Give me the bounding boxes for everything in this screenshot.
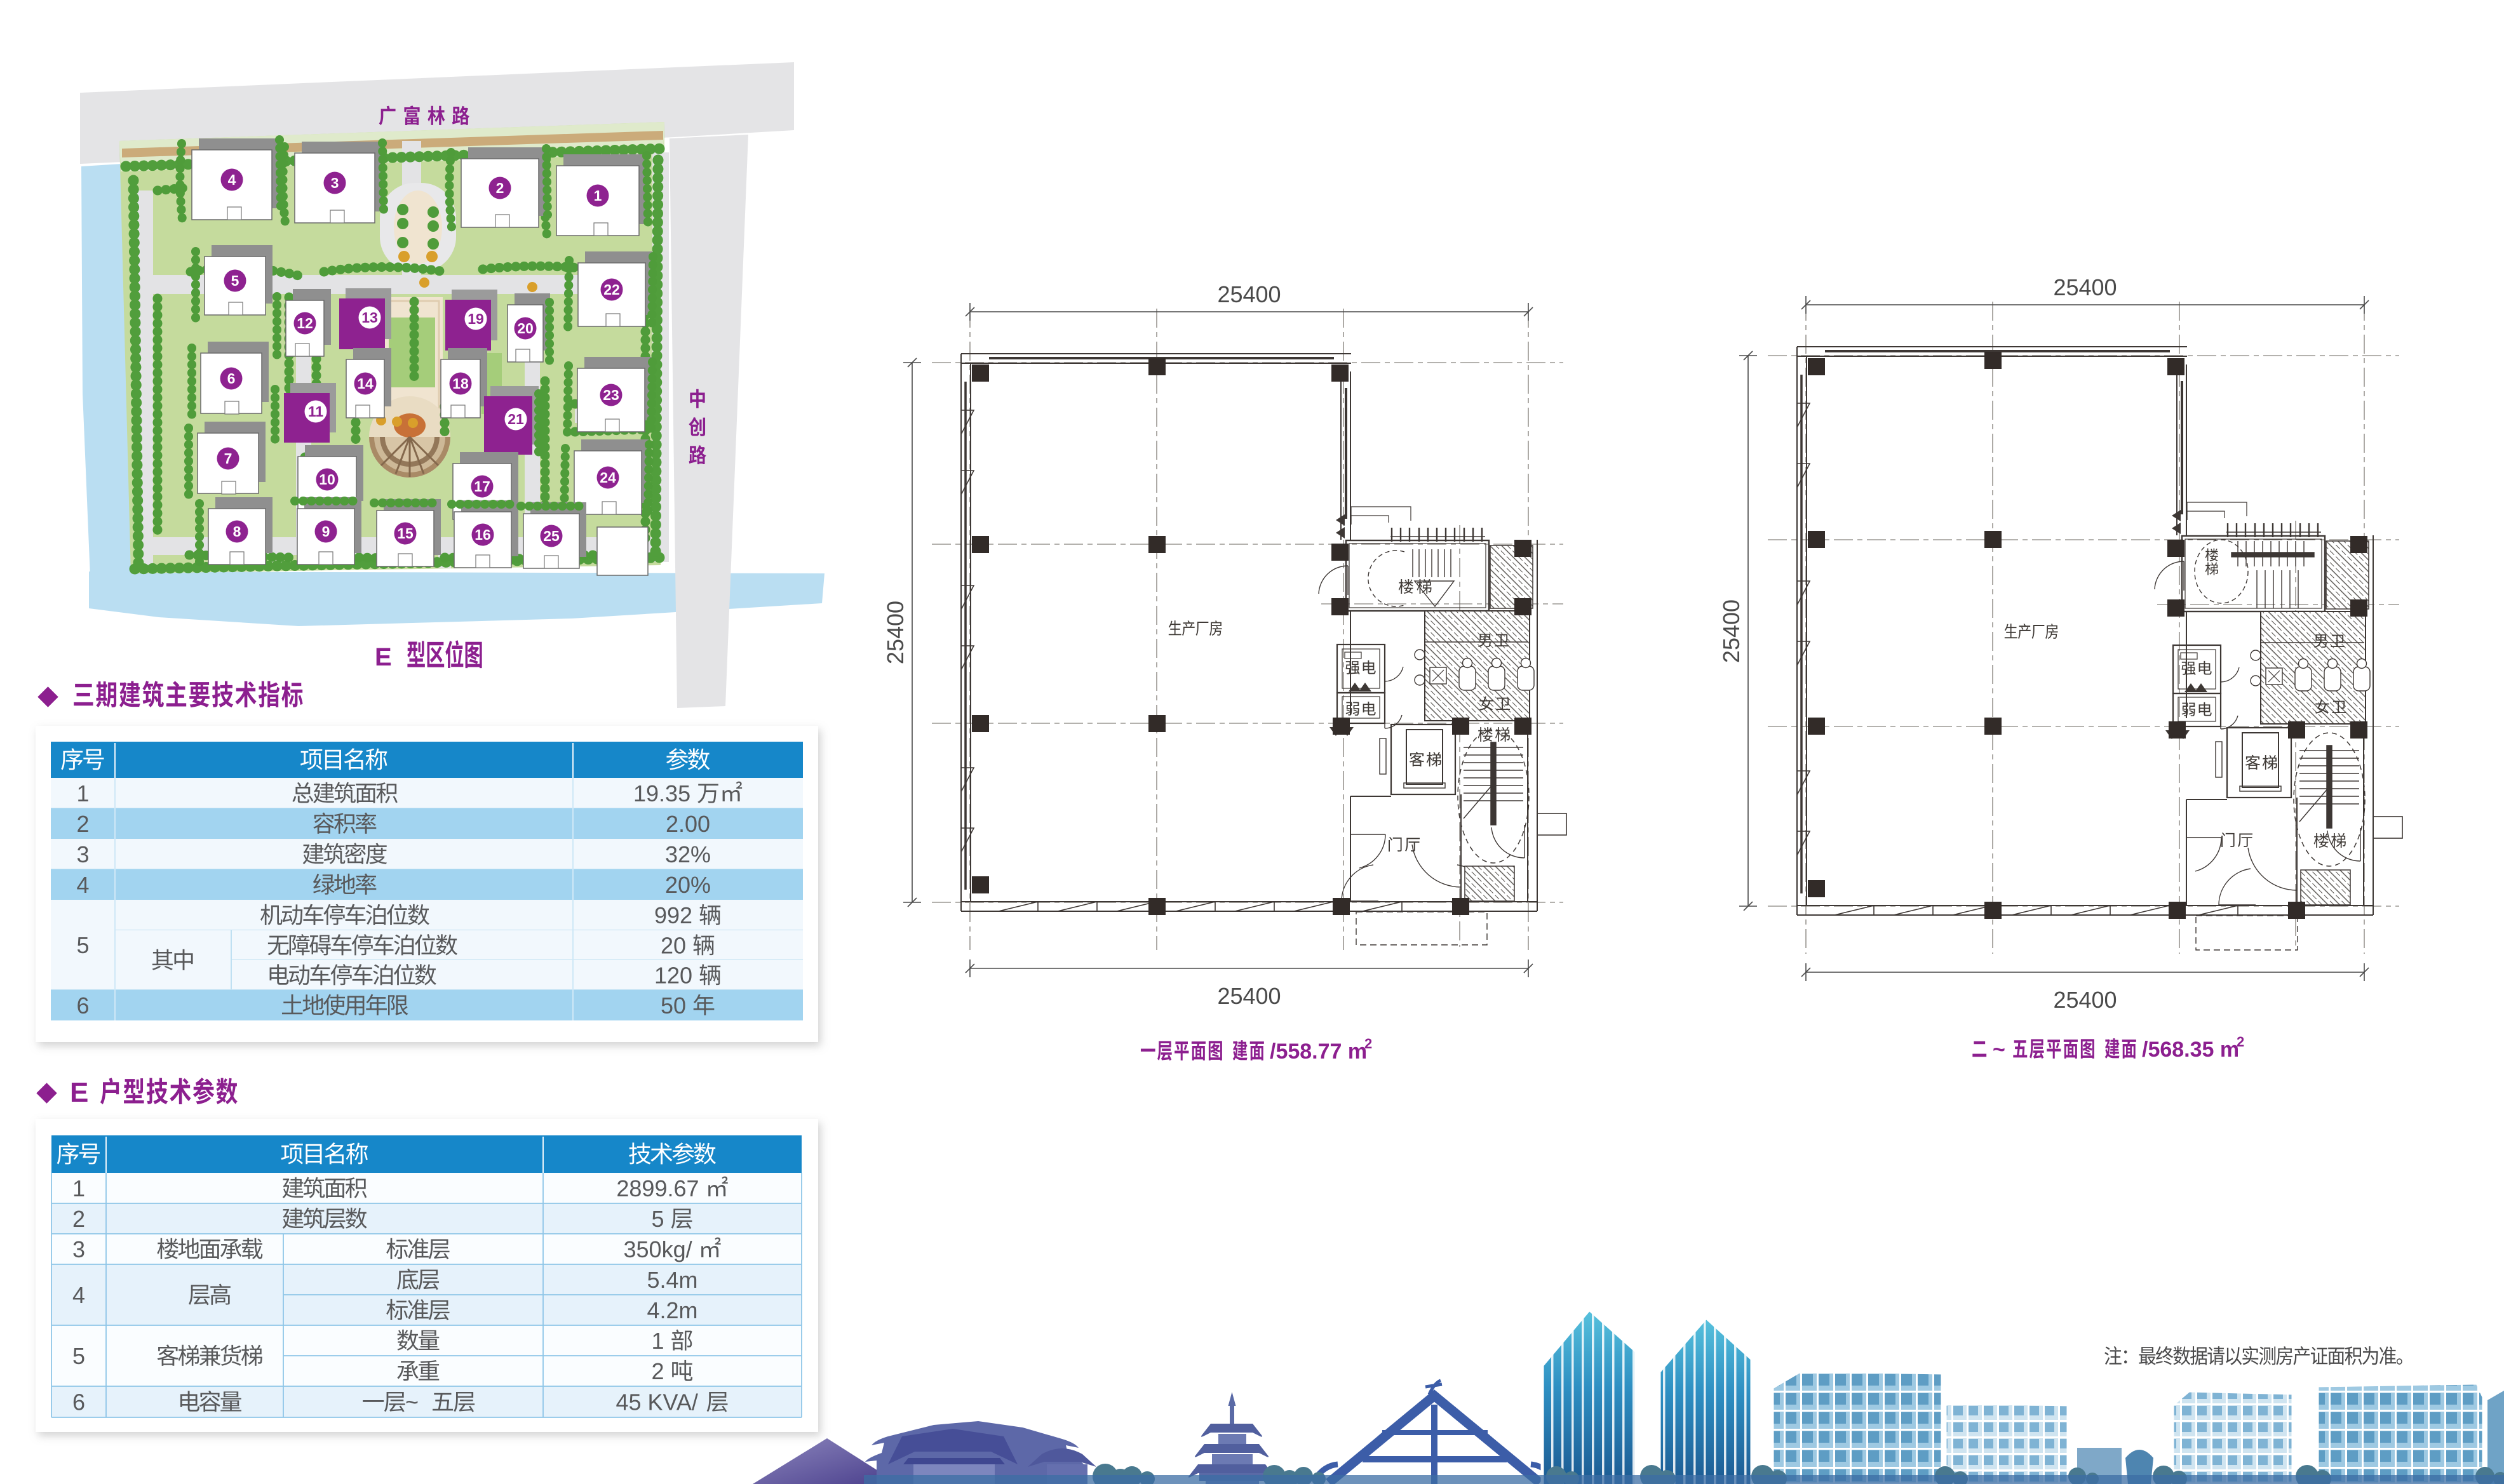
svg-text:/568.35 m: /568.35 m (2142, 1038, 2239, 1062)
svg-text:25400: 25400 (1217, 983, 1281, 1009)
svg-text:2: 2 (2237, 1034, 2244, 1050)
svg-text:14: 14 (357, 375, 374, 392)
svg-text:4: 4 (72, 1282, 85, 1308)
svg-text:45 KVA/: 45 KVA/ (616, 1389, 698, 1415)
svg-text:20: 20 (517, 320, 534, 337)
svg-text:1: 1 (594, 187, 602, 204)
svg-text:4.2m: 4.2m (647, 1297, 697, 1323)
svg-text:22: 22 (603, 281, 620, 298)
svg-text:20: 20 (661, 933, 686, 959)
svg-text:2: 2 (496, 180, 504, 196)
svg-text:2: 2 (72, 1206, 85, 1232)
svg-text:1: 1 (652, 1328, 664, 1354)
svg-text:50: 50 (661, 993, 686, 1019)
svg-text:24: 24 (600, 469, 616, 486)
svg-text:2: 2 (652, 1358, 664, 1384)
svg-text:5.4m: 5.4m (647, 1267, 697, 1293)
svg-text:13: 13 (361, 309, 378, 326)
svg-text:19.35: 19.35 (633, 780, 690, 806)
svg-text:15: 15 (397, 525, 414, 542)
svg-text:2899.67: 2899.67 (616, 1175, 699, 1201)
svg-text:3: 3 (331, 175, 339, 191)
svg-text:10: 10 (319, 471, 335, 488)
svg-text:25400: 25400 (1217, 281, 1281, 307)
svg-text:20%: 20% (665, 872, 711, 898)
svg-text:16: 16 (475, 526, 491, 543)
svg-text:1: 1 (72, 1175, 85, 1201)
svg-text:25400: 25400 (2053, 987, 2117, 1013)
svg-text:6: 6 (72, 1389, 85, 1415)
svg-text:6: 6 (76, 993, 89, 1019)
svg-text:5: 5 (76, 932, 89, 958)
svg-text:~: ~ (405, 1389, 419, 1415)
svg-text:2: 2 (76, 811, 89, 837)
svg-text:E: E (70, 1077, 88, 1108)
svg-text:17: 17 (474, 478, 490, 495)
svg-text:350kg/: 350kg/ (624, 1236, 692, 1262)
svg-text:9: 9 (322, 523, 330, 540)
svg-text:4: 4 (228, 171, 236, 188)
svg-text:2: 2 (1364, 1036, 1372, 1052)
svg-text:/558.77 m: /558.77 m (1270, 1039, 1367, 1064)
svg-text:120: 120 (654, 963, 692, 989)
svg-text:21: 21 (508, 411, 524, 427)
svg-text:4: 4 (76, 872, 89, 898)
svg-text:3: 3 (76, 841, 89, 867)
svg-text:992: 992 (654, 902, 692, 928)
svg-text:23: 23 (603, 387, 619, 403)
svg-text:19: 19 (468, 311, 484, 327)
svg-text:7: 7 (224, 450, 232, 467)
svg-text:25: 25 (543, 528, 560, 544)
svg-text:25400: 25400 (1718, 599, 1744, 663)
svg-text:8: 8 (233, 523, 241, 540)
svg-text:5: 5 (72, 1343, 85, 1369)
svg-text:2.00: 2.00 (666, 811, 710, 837)
svg-text:18: 18 (452, 375, 469, 392)
svg-text:11: 11 (308, 403, 324, 420)
svg-text:32%: 32% (665, 841, 711, 867)
svg-text:1: 1 (76, 780, 89, 806)
svg-text:5: 5 (231, 272, 239, 289)
svg-text:E: E (375, 643, 392, 671)
svg-text:~: ~ (1993, 1038, 2005, 1062)
svg-text:6: 6 (227, 370, 236, 387)
svg-text:25400: 25400 (882, 601, 908, 664)
svg-text:25400: 25400 (2053, 274, 2117, 300)
svg-text:5: 5 (652, 1206, 664, 1232)
svg-text:12: 12 (297, 315, 313, 331)
svg-text:3: 3 (72, 1236, 85, 1262)
